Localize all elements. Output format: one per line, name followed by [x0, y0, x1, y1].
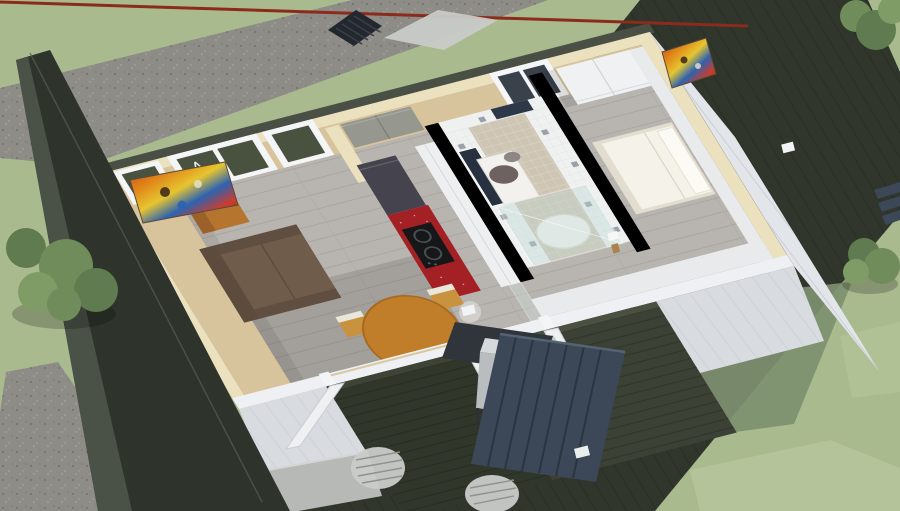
bush: [864, 248, 900, 284]
painting-blob: [178, 201, 187, 210]
floorplan-render: [0, 0, 900, 511]
floorplan-render-stage: [0, 0, 900, 511]
painting-blob: [695, 63, 701, 69]
wire-chair: [351, 447, 405, 489]
painting-blob: [194, 180, 202, 188]
painting-blob: [681, 57, 688, 64]
painting-blob: [160, 187, 170, 197]
bush: [47, 287, 81, 321]
bush: [843, 259, 869, 285]
